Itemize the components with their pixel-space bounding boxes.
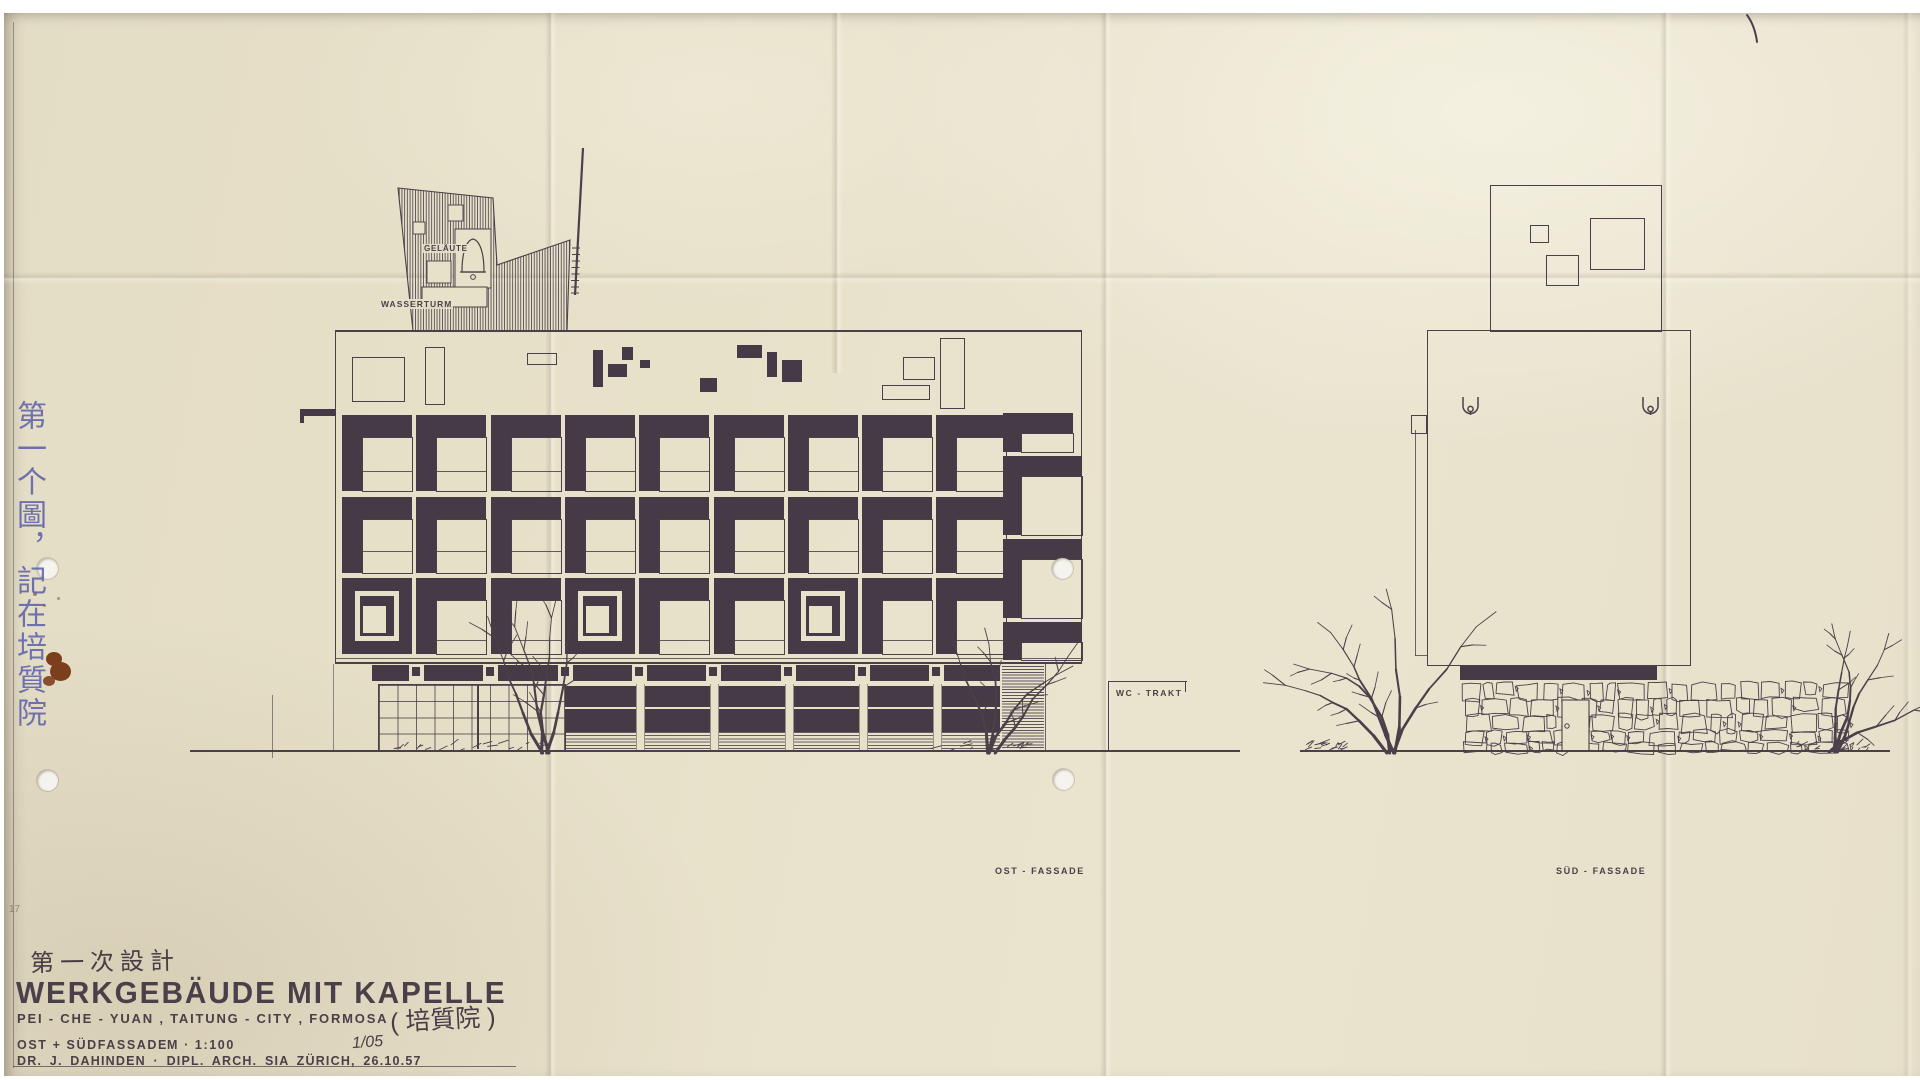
design-phase-note: 第一次設計 (30, 941, 181, 979)
scanned-architectural-drawing: WC - TRAKT GELÄUTE WASSERTURM (0, 0, 1920, 1080)
south-view-label: SÜD - FASSADE (1556, 866, 1646, 876)
location-line: PEI - CHE - YUAN , TAITUNG - CITY , FORM… (17, 1011, 388, 1026)
views-line: OST + SÜDFASSADE (17, 1038, 168, 1052)
architect-line: DR. J. DAHINDEN · DIPL. ARCH. SIA ZÜRICH… (17, 1054, 422, 1068)
punch-hole (1053, 769, 1074, 790)
scale-note: M · 1:100 (167, 1038, 235, 1052)
sheet-number: 1/05 (351, 1033, 383, 1053)
corner-mark: 17 (9, 904, 20, 915)
trees-and-sketch-marks (0, 0, 1920, 1080)
stain-speckle (57, 597, 60, 600)
location-annotation: ( 培質院 ) (389, 997, 496, 1038)
punch-hole (1052, 558, 1073, 579)
punch-hole (37, 770, 58, 791)
margin-note-vertical: 第一个圖，記在培質院 (12, 400, 45, 730)
east-view-label: OST - FASSADE (995, 866, 1085, 876)
